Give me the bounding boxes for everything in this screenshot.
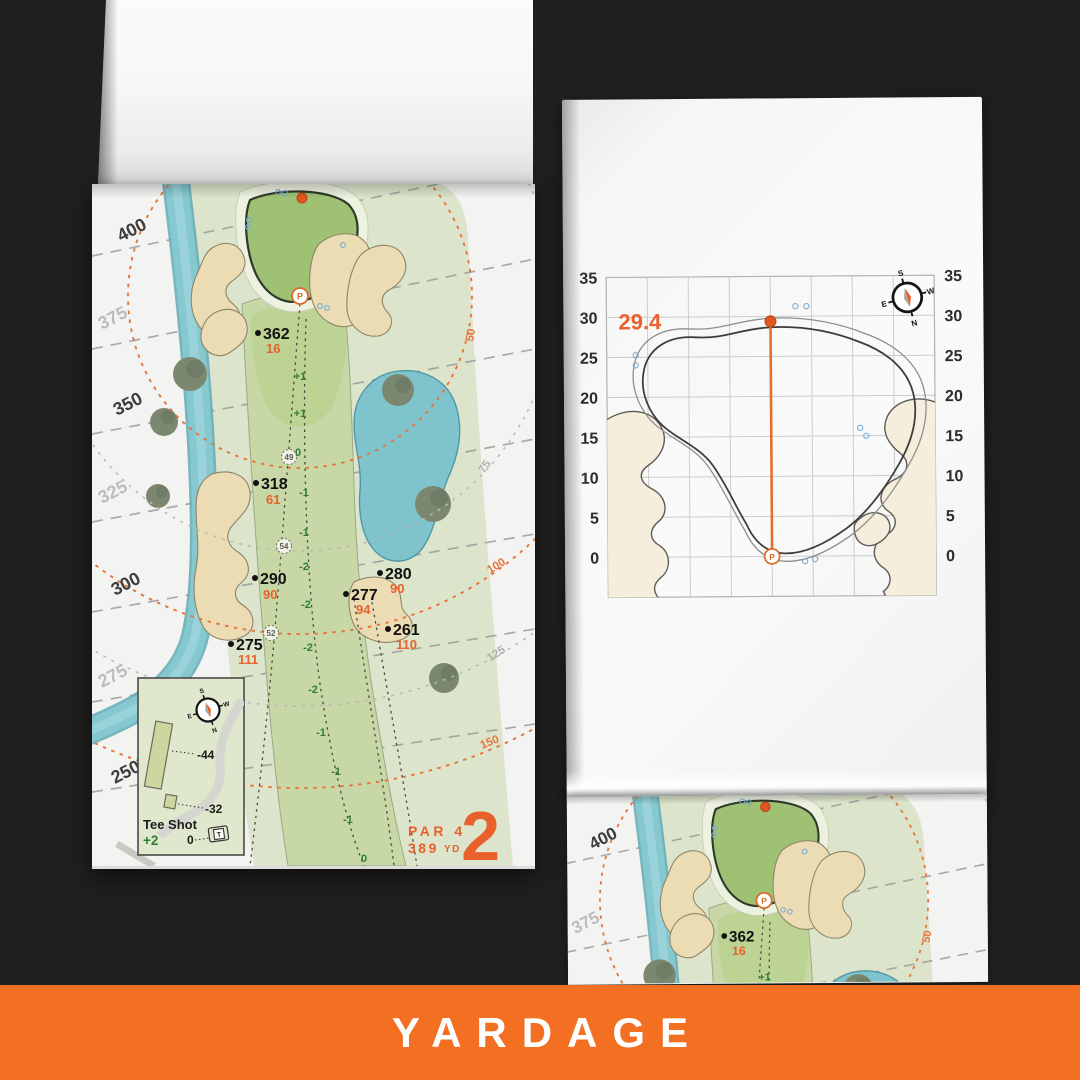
axis-ticks-right: 35 30 25 20 15 10 5 0 <box>944 268 964 565</box>
svg-text:25: 25 <box>580 351 598 368</box>
svg-text:P: P <box>769 552 775 562</box>
green-detail-page: 35 30 25 20 15 10 5 0 35 30 25 20 15 10 … <box>562 97 987 797</box>
banner-title: YARDAGE <box>377 1009 703 1057</box>
svg-text:0: 0 <box>946 548 955 565</box>
depth-line <box>770 323 772 550</box>
svg-text:10: 10 <box>946 468 964 485</box>
svg-text:5: 5 <box>590 511 599 528</box>
svg-text:10: 10 <box>581 471 599 488</box>
yardage-book-cover: S N W E <box>0 0 1080 1080</box>
svg-text:30: 30 <box>944 308 962 325</box>
green-detail-graphic: 35 30 25 20 15 10 5 0 35 30 25 20 15 10 … <box>562 97 987 797</box>
svg-text:30: 30 <box>580 311 598 328</box>
svg-text:35: 35 <box>579 271 597 288</box>
svg-text:35: 35 <box>944 268 962 285</box>
next-hole-page-preview <box>567 794 988 985</box>
yardage-banner: YARDAGE <box>0 985 1080 1080</box>
svg-text:0: 0 <box>590 551 599 568</box>
svg-text:20: 20 <box>945 388 963 405</box>
depth-dot <box>765 316 776 327</box>
svg-text:5: 5 <box>946 508 955 525</box>
svg-text:15: 15 <box>580 431 598 448</box>
axis-ticks-left: 35 30 25 20 15 10 5 0 <box>579 271 599 568</box>
right-booklet: 35 30 25 20 15 10 5 0 35 30 25 20 15 10 … <box>0 0 1080 1080</box>
next-hole-map-crop <box>567 794 988 984</box>
svg-text:15: 15 <box>945 428 963 445</box>
svg-text:20: 20 <box>580 391 598 408</box>
pin-icon: P <box>765 549 780 564</box>
svg-text:25: 25 <box>945 348 963 365</box>
depth-value: 29.4 <box>618 309 662 334</box>
